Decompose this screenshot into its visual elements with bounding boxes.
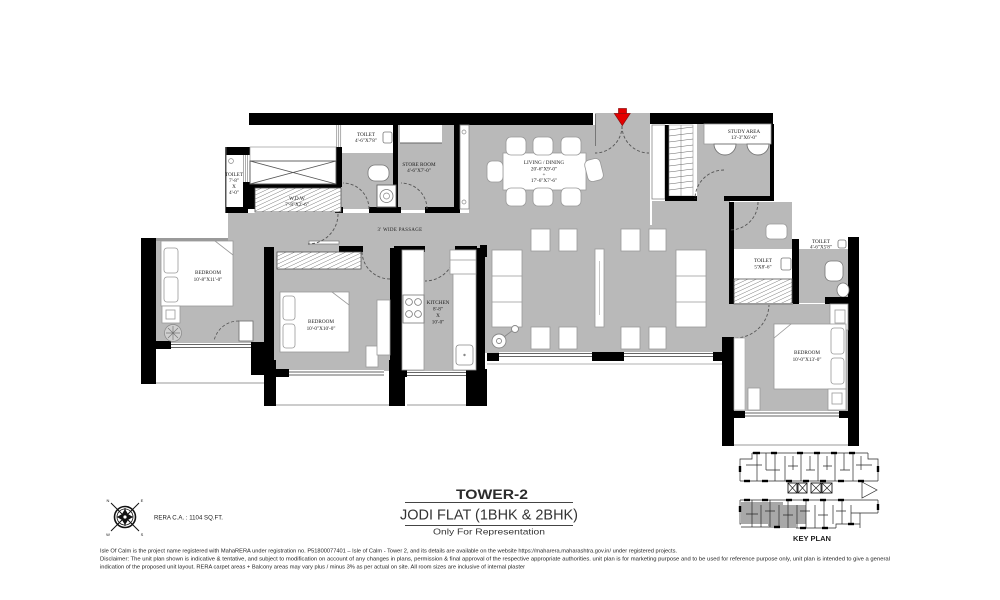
svg-text:10'-0"X13'-0": 10'-0"X13'-0" (793, 357, 822, 363)
svg-text:BEDROOM: BEDROOM (308, 319, 334, 325)
svg-text:Isle Of Calm is the project na: Isle Of Calm is the project name registe… (100, 549, 677, 555)
svg-text:X: X (436, 313, 440, 319)
svg-text:RERA C.A. : 1104 SQ.FT.: RERA C.A. : 1104 SQ.FT. (154, 515, 223, 522)
svg-text:10'-0": 10'-0" (432, 320, 445, 326)
svg-text:LIVING / DINING: LIVING / DINING (524, 160, 565, 166)
svg-text:17'-6"X7'-6": 17'-6"X7'-6" (531, 178, 557, 184)
svg-text:KEY PLAN: KEY PLAN (793, 534, 831, 543)
svg-text:KITCHEN: KITCHEN (427, 300, 450, 306)
svg-text:5'X8'-6": 5'X8'-6" (754, 265, 771, 271)
svg-text:10'-8"X11'-0": 10'-8"X11'-0" (194, 277, 223, 283)
svg-text:Disclaimer: The unit plan show: Disclaimer: The unit plan shown is indic… (100, 557, 890, 563)
svg-text:4'-0": 4'-0" (229, 190, 239, 196)
svg-text:4'-6"X7'-0": 4'-6"X7'-0" (407, 168, 431, 174)
svg-text:8'-8": 8'-8" (433, 307, 443, 313)
svg-text:TOILET: TOILET (754, 258, 773, 264)
svg-text:N: N (107, 498, 110, 503)
svg-text:BEDROOM: BEDROOM (794, 350, 820, 356)
svg-text:TOWER-2: TOWER-2 (456, 487, 528, 502)
svg-text:indication of the proposed uni: indication of the proposed unit layout. … (100, 565, 525, 571)
svg-text:10'-0"X10'-0": 10'-0"X10'-0" (307, 326, 336, 332)
svg-text:E: E (141, 498, 144, 503)
svg-text:13'-3"X6'-0": 13'-3"X6'-0" (731, 135, 757, 141)
svg-text:4'-6"X5'8": 4'-6"X5'8" (810, 245, 832, 251)
svg-text:3' WIDE PASSAGE: 3' WIDE PASSAGE (378, 228, 423, 233)
svg-text:BEDROOM: BEDROOM (195, 270, 221, 276)
svg-text:4'-6"X7'8": 4'-6"X7'8" (355, 138, 377, 144)
svg-text:Only For Representation: Only For Representation (433, 528, 546, 537)
svg-text:JODI FLAT (1BHK & 2BHK): JODI FLAT (1BHK & 2BHK) (400, 508, 578, 524)
svg-text:S: S (141, 532, 144, 537)
svg-text:W: W (106, 532, 110, 537)
svg-text:7'-8"X2'-6": 7'-8"X2'-6" (285, 202, 309, 208)
